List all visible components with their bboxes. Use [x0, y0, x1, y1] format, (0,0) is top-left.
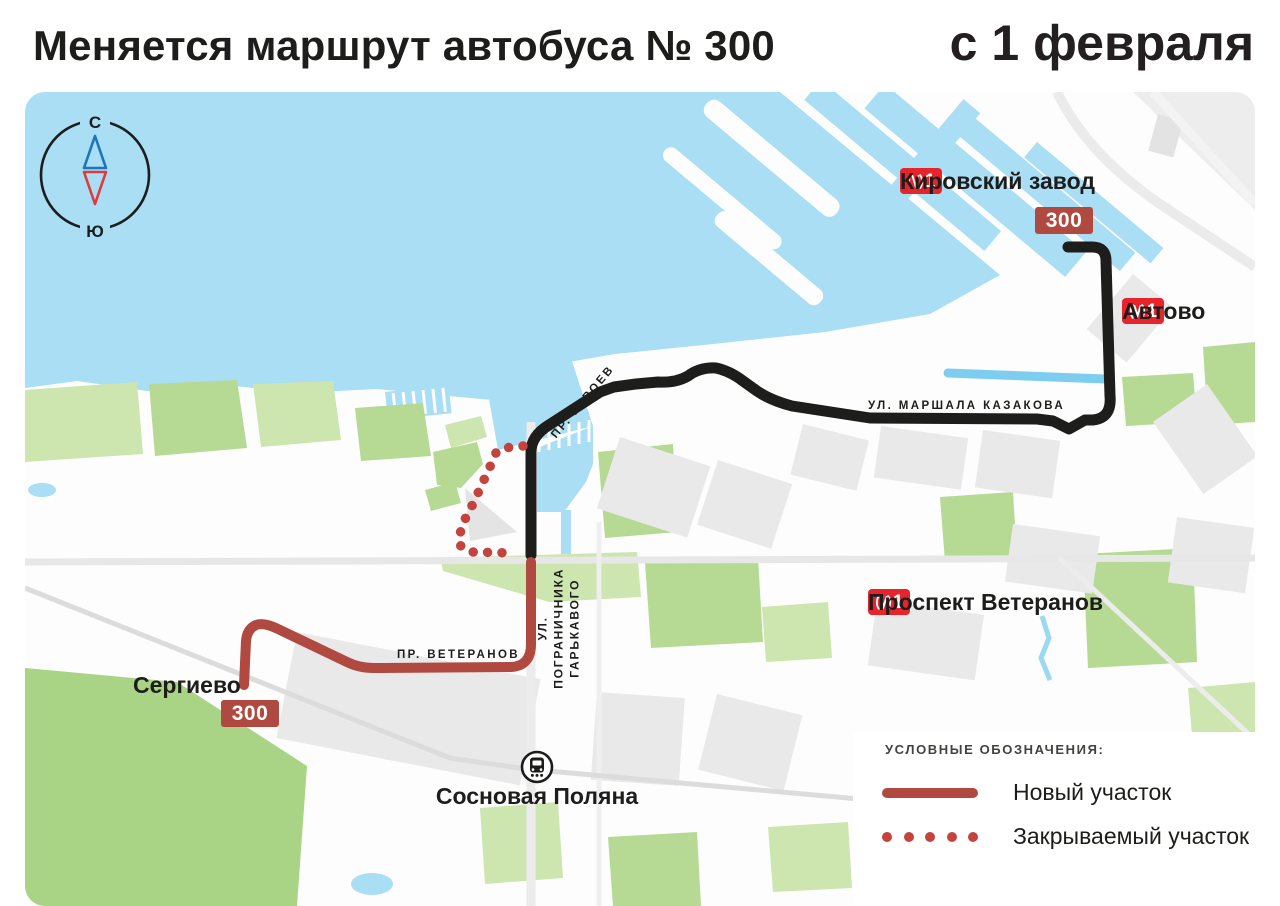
- train-station-icon: [522, 752, 552, 782]
- street-label-line2: ГАРЬКАВОГО: [568, 579, 582, 678]
- place-sergievo: Сергиево: [133, 672, 241, 699]
- station-prospekt-veteranov: Проспект Ветеранов 1: [868, 589, 910, 615]
- river: [948, 373, 1105, 379]
- compass-south-label: Ю: [86, 222, 104, 241]
- street-label-pogranichnika-garkavogo: УЛ. ПОГРАНИЧНИКА ГАРЬКАВОГО: [535, 553, 584, 703]
- effective-date: с 1 февраля: [950, 14, 1254, 72]
- legend-title: УСЛОВНЫЕ ОБОЗНАЧЕНИЯ:: [885, 742, 1255, 757]
- place-sosnovaya-polyana: Сосновая Поляна: [417, 783, 657, 810]
- street-label-line1: УЛ. ПОГРАНИЧНИКА: [536, 568, 566, 689]
- legend-item-new: Новый участок: [882, 779, 1255, 806]
- poster: Меняется маршрут автобуса № 300 с 1 февр…: [0, 0, 1280, 906]
- legend-new-section-sample: [882, 788, 978, 798]
- legend-closed-section-sample: [882, 832, 978, 842]
- station-name: Проспект Ветеранов: [868, 589, 1103, 616]
- route-number-badge-north: 300: [1035, 207, 1093, 234]
- legend-item-closed: Закрываемый участок: [882, 823, 1255, 850]
- page-title: Меняется маршрут автобуса № 300: [33, 22, 775, 70]
- street-label-veteranov: ПР. ВЕТЕРАНОВ: [397, 649, 520, 661]
- legend: УСЛОВНЫЕ ОБОЗНАЧЕНИЯ: Новый участок Закр…: [855, 742, 1255, 867]
- station-avtovo: 1 Автово: [1122, 298, 1164, 324]
- legend-label: Закрываемый участок: [1013, 823, 1249, 850]
- street-label-marshala-kazakova: УЛ. МАРШАЛА КАЗАКОВА: [868, 400, 1065, 412]
- pond-canal: [561, 510, 571, 554]
- small-pond: [28, 483, 56, 497]
- route-number-badge-south: 300: [221, 700, 279, 727]
- legend-label: Новый участок: [1013, 779, 1171, 806]
- station-name: Автово: [1122, 298, 1205, 325]
- stream: [1041, 616, 1050, 680]
- route-map: С Ю Кировский завод 1 300: [25, 92, 1255, 906]
- small-lake: [351, 873, 393, 895]
- compass-north-label: С: [89, 113, 101, 132]
- station-kirovsky-zavod: Кировский завод 1: [900, 168, 942, 194]
- station-name: Кировский завод: [900, 168, 1095, 195]
